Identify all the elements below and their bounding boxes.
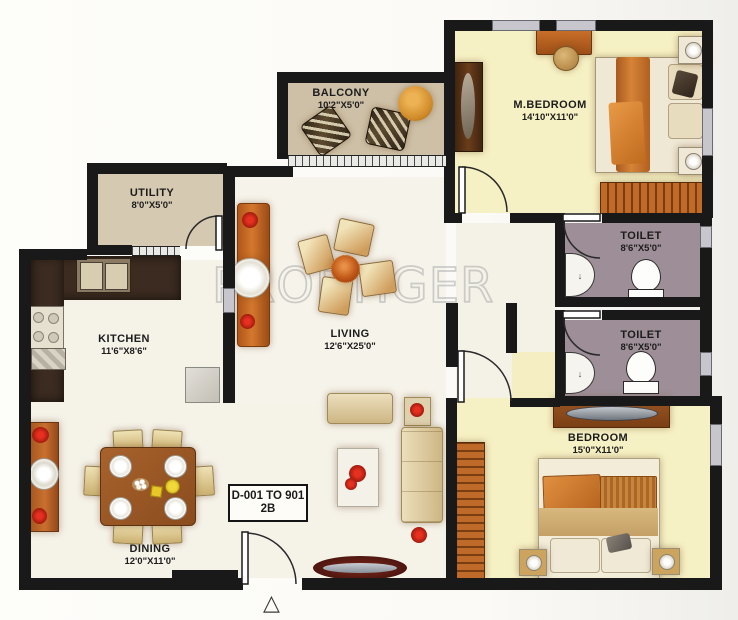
room-dims: 8'6"X5'0" — [620, 243, 661, 254]
master-bedroom-door — [457, 166, 513, 216]
center-table — [331, 255, 360, 283]
tv-screen — [566, 406, 658, 421]
bed-blanket — [542, 474, 601, 511]
room-label-living: LIVING 12'6"X25'0" — [324, 328, 376, 352]
hallway-floor-yellow — [512, 352, 555, 398]
fridge — [185, 367, 220, 403]
wall — [87, 163, 227, 174]
wall — [223, 166, 293, 177]
north-arrow-icon: △ — [263, 592, 280, 614]
unit-label-box: D-001 TO 901 2B — [228, 484, 308, 522]
room-label-dining: DINING 12'0"X11'0" — [124, 543, 175, 567]
bed-band — [539, 508, 658, 536]
window — [710, 424, 722, 466]
room-dims: 14'10"X11'0" — [513, 112, 586, 123]
table-decor-bowl — [165, 479, 180, 494]
sofa — [401, 427, 443, 523]
room-dims: 8'6"X5'0" — [620, 342, 661, 353]
room-label-master-bedroom: M.BEDROOM 14'10"X11'0" — [513, 99, 586, 123]
tv-unit — [313, 556, 407, 580]
toilet-bowl — [631, 259, 661, 292]
nightstand — [652, 548, 680, 575]
balcony-table — [398, 86, 433, 121]
stove — [28, 306, 64, 350]
plate — [109, 497, 132, 520]
toilet-door — [562, 213, 604, 261]
wall — [19, 249, 31, 590]
room-name: DINING — [124, 543, 175, 555]
room-dims: 12'6"X25'0" — [324, 341, 376, 352]
room-label-kitchen: KITCHEN 11'6"X8'6" — [98, 333, 150, 357]
burner — [33, 331, 44, 342]
lamp — [526, 555, 542, 571]
room-name: M.BEDROOM — [513, 99, 586, 111]
kitchen-counter-checker — [31, 348, 66, 370]
room-name: LIVING — [324, 328, 376, 340]
utility-door — [180, 215, 224, 255]
table-decor-napkin — [150, 485, 162, 497]
plate — [164, 497, 187, 520]
room-dims: 8'0"X5'0" — [130, 200, 174, 211]
burner — [48, 332, 59, 343]
unit-number: D-001 TO 901 — [230, 490, 306, 502]
wall — [602, 213, 702, 223]
wall — [510, 398, 560, 407]
tv-screen — [323, 563, 397, 573]
burner — [48, 313, 59, 324]
dresser-stool — [553, 46, 579, 71]
kitchen-pass-window — [223, 288, 235, 313]
sink-basin — [105, 263, 128, 290]
room-dims: 12'0"X11'0" — [124, 556, 175, 567]
wardrobe-mirror — [454, 62, 483, 152]
window — [700, 226, 712, 248]
wall — [87, 245, 132, 255]
flower-decor — [32, 508, 47, 524]
wall — [506, 303, 517, 353]
room-label-utility: UTILITY 8'0"X5'0" — [130, 187, 174, 211]
bed — [538, 458, 660, 579]
lamp — [685, 153, 702, 170]
wall — [302, 578, 722, 590]
flower-decor — [411, 527, 427, 543]
room-name: TOILET — [620, 329, 661, 341]
wall — [87, 174, 98, 255]
unit-type: 2B — [230, 503, 306, 515]
wall — [277, 72, 447, 83]
bed-blanket — [600, 476, 657, 510]
lamp — [685, 42, 702, 59]
utility-sliding-door — [132, 246, 180, 256]
room-dims: 15'0"X11'0" — [568, 445, 628, 456]
room-label-toilet-2: TOILET 8'6"X5'0" — [620, 329, 661, 353]
decor-plate — [29, 458, 59, 490]
plate — [164, 455, 187, 478]
armchair — [333, 218, 375, 258]
flower-decor — [410, 403, 424, 417]
balcony-sliding-door — [288, 155, 446, 167]
wall — [223, 313, 235, 403]
coffee-table — [337, 448, 379, 507]
flower-decor — [32, 427, 49, 443]
room-name: TOILET — [620, 230, 661, 242]
wall — [555, 297, 702, 307]
toilet-tank — [623, 381, 659, 394]
flower-decor — [240, 314, 255, 329]
room-label-bedroom: BEDROOM 15'0"X11'0" — [568, 432, 628, 456]
floor-plan: PROPTIGER ↓ ↓ — [0, 0, 738, 620]
wall — [277, 83, 288, 159]
window — [702, 108, 713, 156]
main-entrance-door — [241, 531, 305, 589]
burner — [33, 312, 44, 323]
armchair — [358, 260, 397, 298]
wall — [223, 177, 235, 288]
sink-basin — [80, 262, 103, 290]
room-name: KITCHEN — [98, 333, 150, 345]
wall — [602, 310, 702, 320]
bed-pillow — [668, 103, 703, 139]
wall — [555, 396, 712, 406]
corner-table — [404, 397, 431, 426]
sofa — [327, 393, 393, 424]
room-name: BALCONY — [312, 87, 369, 99]
room-name: BEDROOM — [568, 432, 628, 444]
room-label-toilet-1: TOILET 8'6"X5'0" — [620, 230, 661, 254]
wardrobe — [600, 182, 706, 214]
toilet-bowl — [626, 351, 656, 384]
flower-decor — [345, 478, 357, 490]
flower-decor — [242, 212, 258, 228]
bed-pillow — [550, 538, 600, 573]
wall — [172, 570, 238, 590]
lamp — [659, 554, 675, 570]
window — [700, 352, 712, 376]
bed-throw — [608, 101, 645, 165]
room-name: UTILITY — [130, 187, 174, 199]
dining-table — [100, 447, 196, 526]
window — [556, 20, 596, 31]
wall — [446, 398, 457, 590]
kitchen-sink — [76, 258, 131, 293]
plate — [109, 455, 132, 478]
toilet-door — [562, 310, 604, 358]
mirror — [461, 73, 475, 139]
bedroom-door — [455, 350, 515, 404]
window — [492, 20, 540, 31]
room-label-balcony: BALCONY 10'2"X5'0" — [312, 87, 369, 111]
room-dims: 10'2"X5'0" — [312, 100, 369, 111]
side-table — [230, 258, 270, 298]
room-dims: 11'6"X8'6" — [98, 346, 150, 357]
nightstand — [519, 549, 547, 576]
table-decor-flowers — [132, 478, 149, 491]
wall — [444, 20, 455, 223]
